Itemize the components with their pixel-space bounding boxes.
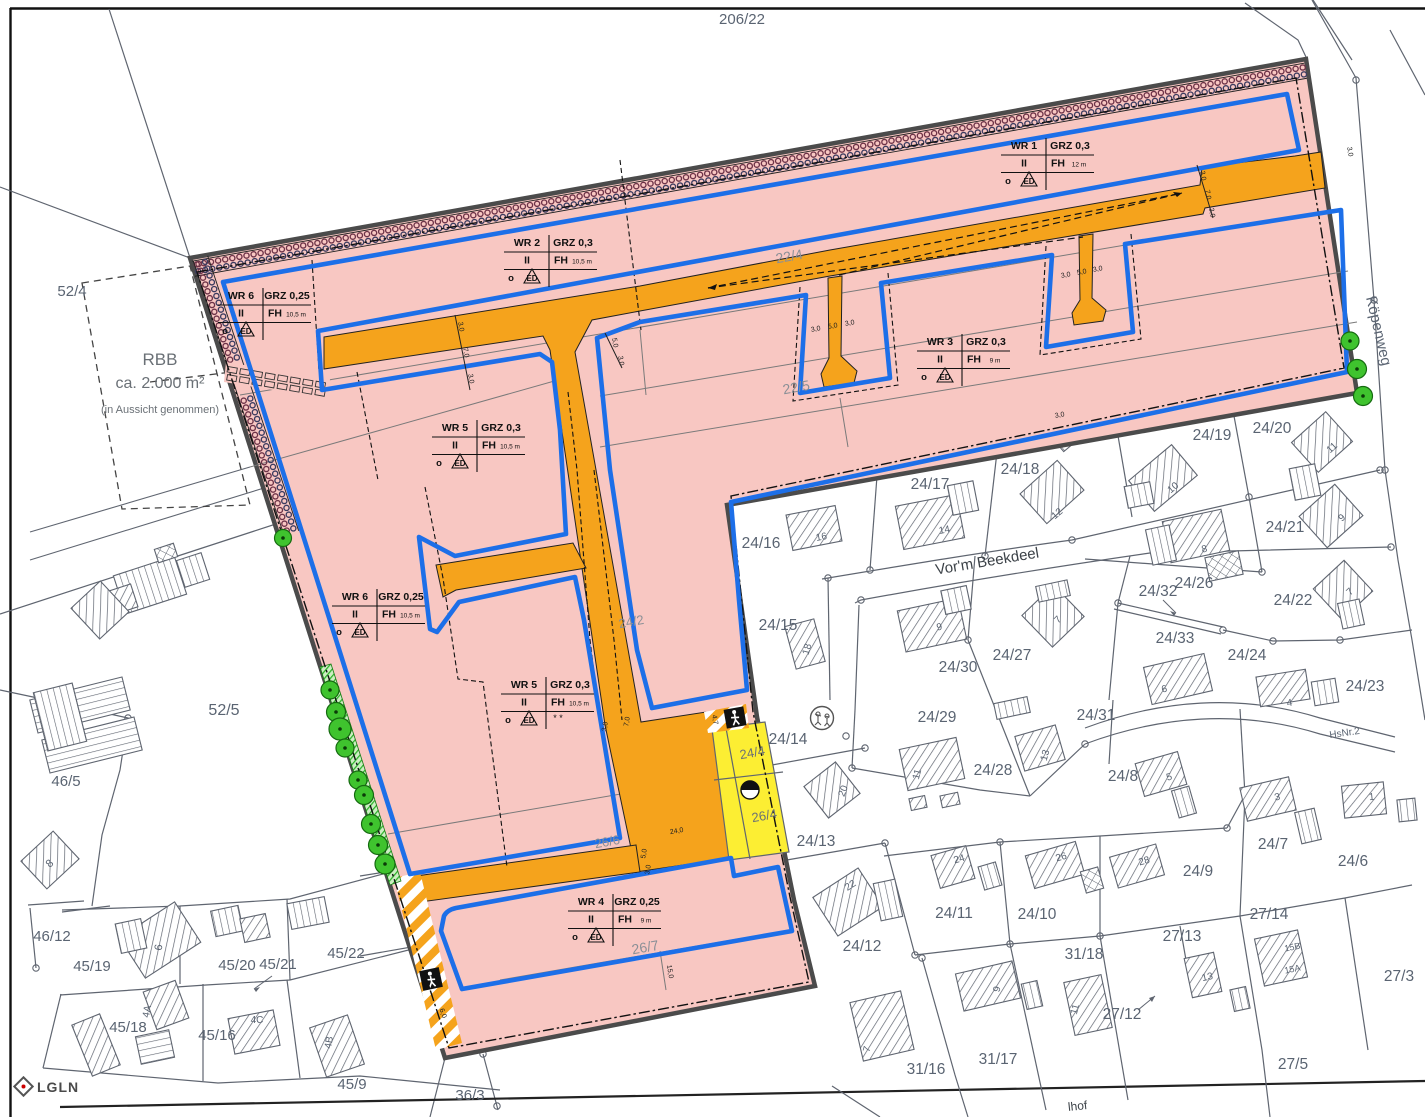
svg-text:FH: FH [618,914,632,926]
svg-text:45/19: 45/19 [73,958,111,975]
svg-text:FH: FH [554,255,568,267]
svg-text:ED: ED [523,716,534,725]
svg-text:WR 5: WR 5 [442,422,468,434]
svg-text:o: o [336,627,342,638]
svg-text:ca. 2.000 m²: ca. 2.000 m² [116,375,206,392]
svg-text:ED: ED [454,459,465,468]
svg-text:24/30: 24/30 [939,659,978,676]
svg-text:24/12: 24/12 [843,938,882,955]
svg-text:II: II [588,914,594,926]
svg-text:24/13: 24/13 [797,833,836,850]
svg-text:24/16: 24/16 [742,535,781,552]
svg-text:lhof: lhof [1067,1098,1088,1114]
svg-text:46/5: 46/5 [51,773,80,790]
svg-text:9 m: 9 m [641,918,652,925]
svg-text:LGLN: LGLN [37,1079,79,1095]
svg-text:206/22: 206/22 [719,11,765,28]
svg-text:o: o [222,326,228,337]
svg-text:FH: FH [967,354,981,366]
svg-text:31/16: 31/16 [907,1061,946,1078]
svg-text:GRZ 0,25: GRZ 0,25 [614,896,660,908]
svg-text:24/9: 24/9 [1183,863,1213,880]
svg-text:24/28: 24/28 [974,762,1013,779]
svg-text:WR 1: WR 1 [1011,140,1037,152]
svg-text:GRZ 0,3: GRZ 0,3 [481,422,521,434]
svg-text:II: II [452,440,458,452]
svg-text:II: II [1021,158,1027,170]
svg-text:o: o [1005,176,1011,187]
svg-text:24/14: 24/14 [769,731,808,748]
svg-text:27/12: 27/12 [1103,1006,1142,1023]
svg-text:24/15: 24/15 [759,617,798,634]
svg-text:II: II [521,697,527,709]
svg-text:27/14: 27/14 [1250,906,1289,923]
svg-text:24/20: 24/20 [1253,420,1292,437]
svg-text:4B: 4B [323,1035,336,1049]
svg-text:WR 4: WR 4 [578,896,604,908]
svg-text:45/20: 45/20 [218,957,256,974]
svg-text:FH: FH [382,609,396,621]
svg-text:ED: ED [1023,177,1034,186]
svg-text:24/10: 24/10 [1018,906,1057,923]
svg-text:o: o [505,715,511,726]
svg-text:RBB: RBB [143,350,178,369]
svg-text:24/29: 24/29 [918,709,957,726]
svg-text:WR 5: WR 5 [511,679,537,691]
svg-text:WR 2: WR 2 [514,237,540,249]
svg-text:24/17: 24/17 [911,476,950,493]
svg-text:24/21: 24/21 [1266,519,1305,536]
svg-text:24/18: 24/18 [1001,461,1040,478]
svg-text:24/32: 24/32 [1139,583,1178,600]
svg-text:24/26: 24/26 [1175,575,1214,592]
svg-text:24/33: 24/33 [1156,630,1195,647]
svg-text:45/9: 45/9 [337,1076,366,1093]
svg-text:24/11: 24/11 [935,905,973,922]
svg-text:o: o [436,458,442,469]
svg-text:o: o [572,932,578,943]
svg-text:FH: FH [551,697,565,709]
svg-text:45/21: 45/21 [259,956,297,973]
svg-text:(in Aussicht genommen): (in Aussicht genommen) [101,404,219,416]
svg-text:24/8: 24/8 [1108,768,1138,785]
svg-text:o: o [921,372,927,383]
svg-text:ED: ED [354,628,365,637]
svg-text:31/17: 31/17 [979,1051,1018,1068]
svg-text:GRZ 0,25: GRZ 0,25 [378,591,424,603]
svg-text:FH: FH [1051,158,1065,170]
svg-text:o: o [508,273,514,284]
svg-text:45/22: 45/22 [327,945,365,962]
svg-text:GRZ 0,3: GRZ 0,3 [1050,140,1090,152]
svg-text:12 m: 12 m [1072,162,1086,169]
svg-text:10,5 m: 10,5 m [286,312,306,319]
svg-text:10,5 m: 10,5 m [500,444,520,451]
svg-text:24/23: 24/23 [1346,678,1385,695]
svg-text:* *: * * [553,713,563,723]
svg-text:24/7: 24/7 [1258,836,1288,853]
svg-text:4A: 4A [141,1004,154,1018]
svg-text:ED: ED [590,933,601,942]
svg-text:II: II [524,255,530,267]
svg-text:27/5: 27/5 [1278,1056,1308,1073]
svg-text:4C: 4C [251,1015,264,1026]
svg-text:WR 3: WR 3 [927,336,953,348]
svg-text:GRZ 0,25: GRZ 0,25 [264,290,310,302]
svg-text:46/12: 46/12 [33,928,71,945]
svg-text:GRZ 0,3: GRZ 0,3 [553,237,593,249]
svg-text:ED: ED [939,373,950,382]
svg-text:24/19: 24/19 [1193,427,1232,444]
svg-text:52/5: 52/5 [208,702,239,719]
svg-text:27/3: 27/3 [1384,968,1414,985]
svg-text:24/22: 24/22 [1274,592,1313,609]
svg-text:36/3: 36/3 [455,1087,484,1104]
svg-text:II: II [937,354,943,366]
svg-text:10,5 m: 10,5 m [400,613,420,620]
svg-text:GRZ 0,3: GRZ 0,3 [550,679,590,691]
svg-text:24/6: 24/6 [1338,853,1368,870]
svg-text:FH: FH [482,440,496,452]
svg-text:31/18: 31/18 [1065,946,1104,963]
svg-text:FH: FH [268,308,282,320]
svg-text:24/27: 24/27 [993,647,1032,664]
svg-text:45/18: 45/18 [109,1019,147,1036]
svg-text:10,5 m: 10,5 m [569,701,589,708]
svg-text:24/31: 24/31 [1077,707,1116,724]
svg-text:ED: ED [526,274,537,283]
svg-text:52/4: 52/4 [57,283,86,300]
svg-text:45/16: 45/16 [198,1027,236,1044]
svg-text:27/13: 27/13 [1163,928,1202,945]
svg-text:10,5 m: 10,5 m [572,259,592,266]
svg-text:24/24: 24/24 [1228,647,1267,664]
svg-text:II: II [352,609,358,621]
svg-text:WR 6: WR 6 [228,290,254,302]
svg-text:II: II [238,308,244,320]
svg-text:WR 6: WR 6 [342,591,368,603]
svg-text:9 m: 9 m [990,358,1001,365]
svg-text:GRZ 0,3: GRZ 0,3 [966,336,1006,348]
svg-text:ED: ED [240,327,251,336]
